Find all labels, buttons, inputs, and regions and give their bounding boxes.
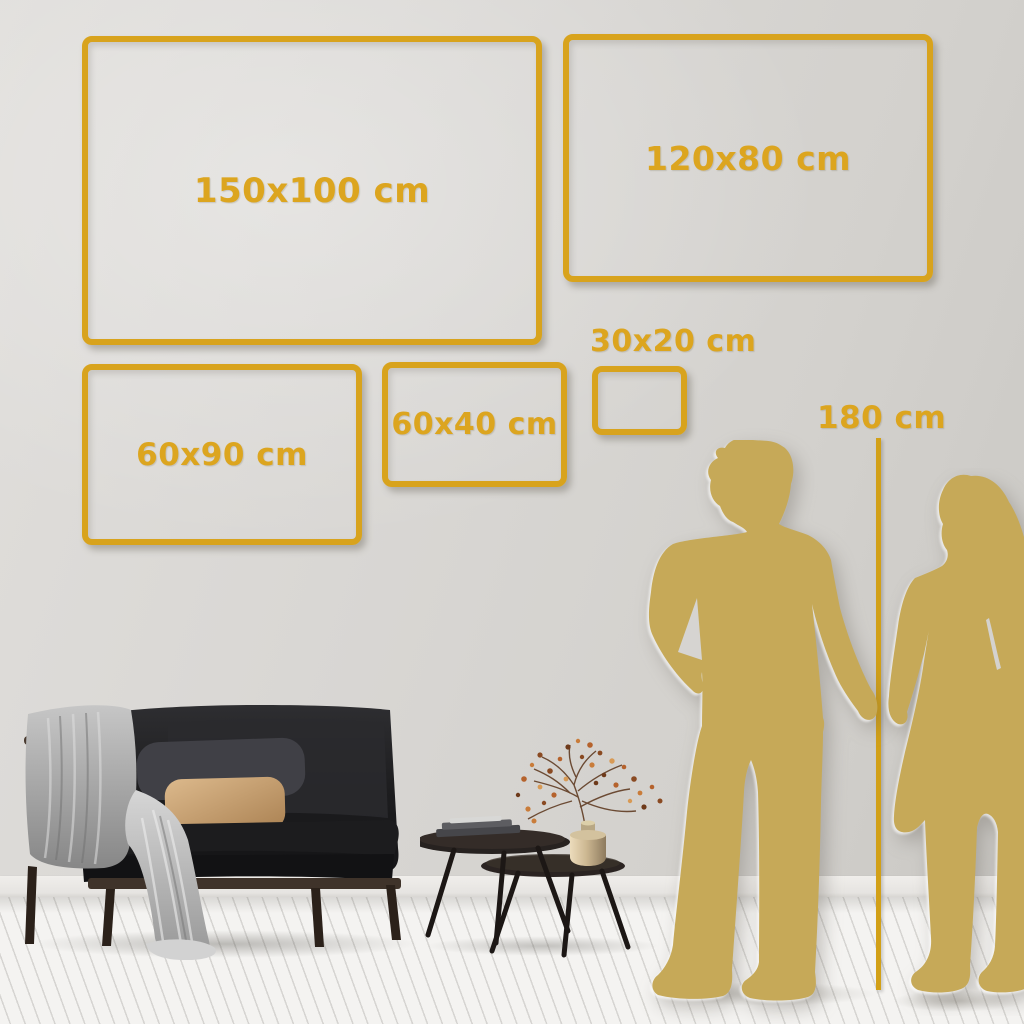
size-frame-30x20 <box>592 366 687 435</box>
size-frame-120x80: 120x80 cm <box>563 34 933 282</box>
man-silhouette <box>645 440 885 1002</box>
plant-berries <box>516 739 663 824</box>
sofa-leg <box>102 889 115 946</box>
woman-silhouette <box>885 468 1024 1016</box>
seat-front <box>82 854 394 882</box>
size-label-120x80: 120x80 cm <box>645 139 851 178</box>
woman-silhouette-wrap <box>885 468 1024 1016</box>
height-label: 180 cm <box>817 400 942 436</box>
sofa-leg <box>25 866 37 944</box>
blanket-arm <box>26 705 137 868</box>
size-label-60x40: 60x40 cm <box>391 407 557 442</box>
size-label-150x100: 150x100 cm <box>194 171 430 211</box>
sofa-bottom-rail <box>88 878 401 889</box>
sofa-leg <box>386 885 401 940</box>
size-label-60x90: 60x90 cm <box>136 437 308 473</box>
size-frame-60x40: 60x40 cm <box>382 362 567 487</box>
size-guide-scene: 150x100 cm 120x80 cm 60x90 cm 60x40 cm 3… <box>0 0 1024 1024</box>
sofa-leg <box>311 888 324 947</box>
sofa <box>18 698 433 960</box>
size-label-30x20: 30x20 cm <box>590 324 756 359</box>
size-frame-150x100: 150x100 cm <box>82 36 542 345</box>
vase <box>570 821 606 867</box>
size-frame-60x90: 60x90 cm <box>82 364 362 545</box>
